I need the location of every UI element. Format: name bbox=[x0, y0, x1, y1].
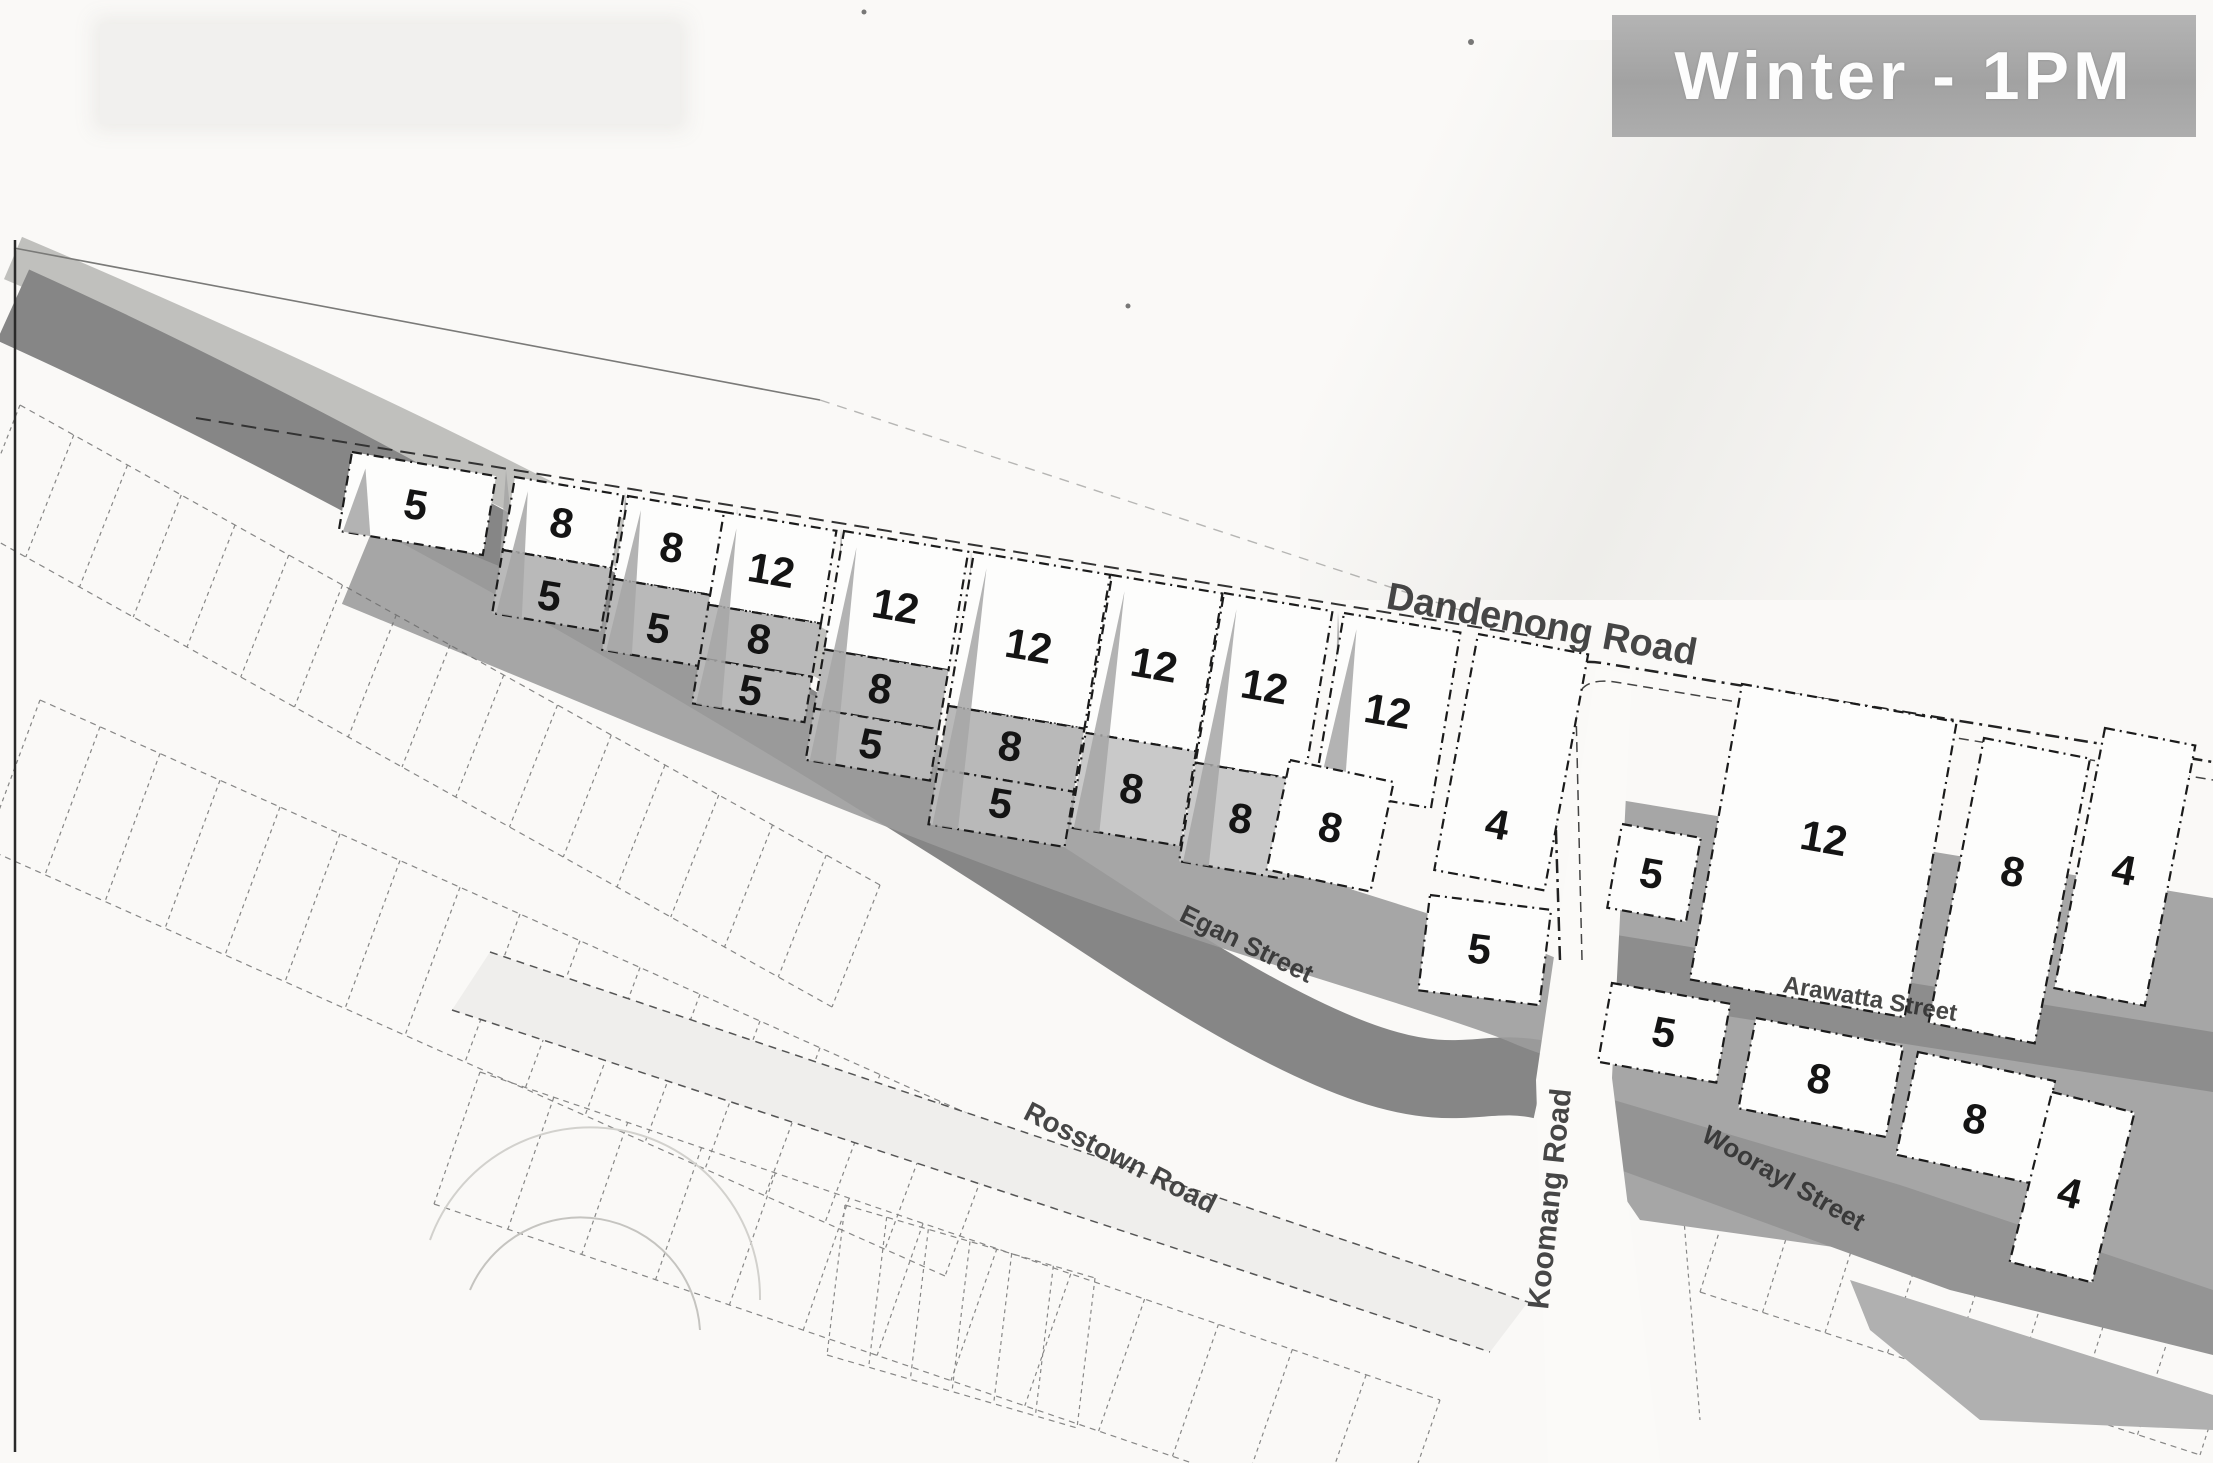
lot-height-label: 12 bbox=[1797, 811, 1851, 865]
rosstown-road-surface bbox=[452, 952, 1528, 1352]
scanned-shadow-diagram-page: Winter - 1PM bbox=[0, 0, 2213, 1463]
lot: 4 bbox=[1434, 634, 1588, 890]
lot-height-label: 12 bbox=[869, 579, 923, 633]
lot-height-label: 12 bbox=[1002, 619, 1056, 673]
lot-height-label: 12 bbox=[744, 543, 798, 597]
lot-height-label: 12 bbox=[1238, 659, 1292, 713]
lot: 5 bbox=[1418, 895, 1551, 1005]
rosstown-road-lines bbox=[452, 952, 1528, 1352]
lot: 5 bbox=[1607, 824, 1701, 922]
shadow-study-map: 5 8 5 8 5 12 8 bbox=[0, 0, 2213, 1463]
lot-column: 8 5 bbox=[492, 477, 623, 631]
ink-specks bbox=[862, 10, 1475, 309]
crescent-arcs bbox=[430, 1127, 760, 1330]
lot-height-label: 12 bbox=[1127, 638, 1181, 692]
lot-height-label: 12 bbox=[1361, 684, 1415, 738]
